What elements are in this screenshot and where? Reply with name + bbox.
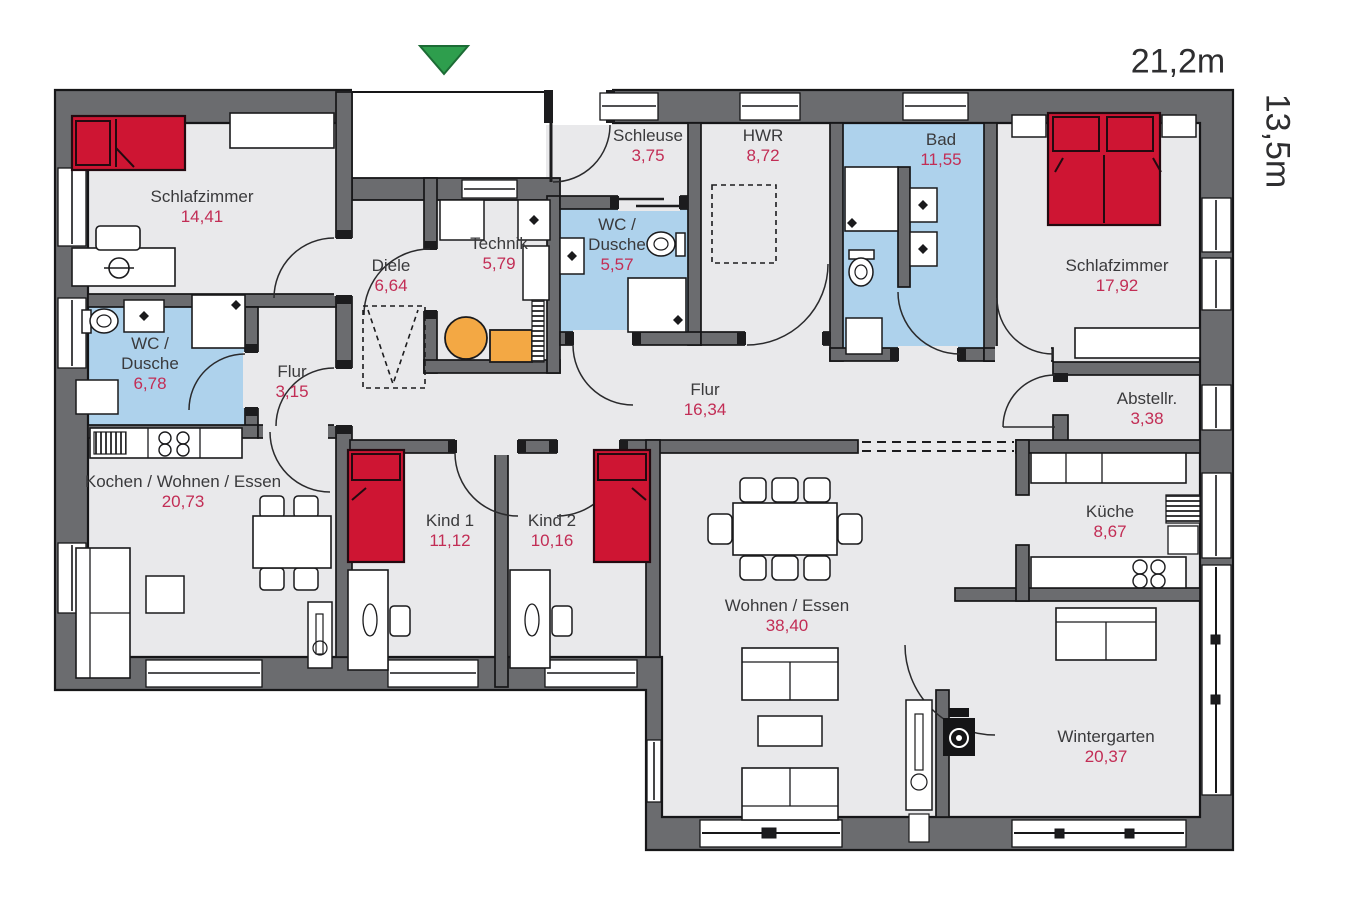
room-label-diele: Diele 6,64 bbox=[372, 256, 411, 296]
room-label-wc-dusche-mid: WC / Dusche 5,57 bbox=[573, 215, 661, 275]
dimension-width-label: 21,2m bbox=[1131, 43, 1226, 82]
shower-icon bbox=[845, 167, 898, 231]
room-label-kind-2: Kind 2 10,16 bbox=[528, 511, 576, 551]
room-label-kind-1: Kind 1 11,12 bbox=[426, 511, 474, 551]
room-label-schlafzimmer-left: Schlafzimmer 14,41 bbox=[151, 187, 254, 227]
sofa-icon bbox=[76, 548, 130, 678]
room-label-wohnen-essen: Wohnen / Essen 38,40 bbox=[725, 596, 849, 636]
room-label-flur-main: Flur 16,34 bbox=[684, 380, 727, 420]
room-label-schlafzimmer-right: Schlafzimmer 17,92 bbox=[1066, 256, 1169, 296]
sofa-icon bbox=[742, 768, 838, 820]
side-table-icon bbox=[146, 576, 184, 613]
tv-board-icon bbox=[308, 602, 332, 668]
dimension-height-label: 13,5m bbox=[1258, 94, 1297, 189]
room-label-wc-dusche-left: WC / Dusche 6,78 bbox=[106, 334, 194, 394]
room-label-wintergarten: Wintergarten 20,37 bbox=[1057, 727, 1154, 767]
floorplan-page: Schlafzimmer 14,41 WC / Dusche 6,78 Flur… bbox=[0, 0, 1348, 899]
room-label-kueche: Küche 8,67 bbox=[1086, 502, 1134, 542]
tv-board-icon bbox=[906, 700, 932, 842]
room-label-bad: Bad 11,55 bbox=[920, 130, 961, 170]
room-label-flur-left: Flur 3,15 bbox=[275, 362, 308, 402]
entrance-arrow-icon bbox=[420, 46, 468, 74]
toilet-icon bbox=[82, 309, 118, 333]
kitchen-counter-icon bbox=[90, 428, 242, 458]
bed-icon bbox=[72, 116, 185, 170]
wardrobe-icon bbox=[230, 113, 334, 148]
cabinet-icon bbox=[846, 318, 882, 354]
shower-icon bbox=[628, 278, 686, 332]
bed-icon bbox=[594, 450, 650, 562]
room-label-technik: Technik 5,79 bbox=[470, 234, 528, 274]
sofa-icon bbox=[1056, 608, 1156, 660]
room-label-kochen-wohnen-essen: Kochen / Wohnen / Essen 20,73 bbox=[85, 472, 281, 512]
sink-icon bbox=[124, 300, 164, 332]
room-label-hwr: HWR 8,72 bbox=[743, 126, 784, 166]
sofa-icon bbox=[742, 648, 838, 700]
wardrobe-icon bbox=[1075, 328, 1200, 358]
bed-icon bbox=[348, 450, 404, 562]
toilet-icon bbox=[849, 250, 874, 286]
room-label-abstellraum: Abstellr. 3,38 bbox=[1117, 389, 1177, 429]
room-label-schleuse: Schleuse 3,75 bbox=[613, 126, 683, 166]
shower-icon bbox=[192, 295, 245, 348]
coffee-table-icon bbox=[758, 716, 822, 746]
